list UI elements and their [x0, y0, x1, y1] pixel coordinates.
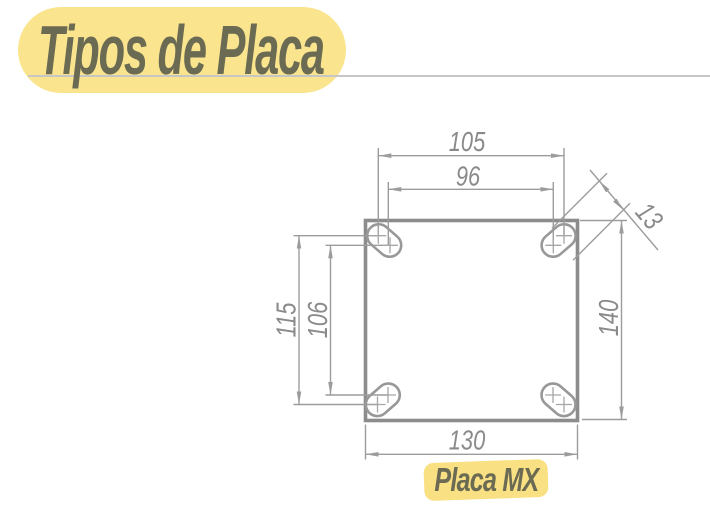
dim-label-130: 130	[449, 425, 485, 456]
dimension-130: 130	[366, 425, 578, 460]
dim-label-106: 106	[302, 302, 333, 338]
dim-label-115: 115	[271, 302, 302, 338]
dim-label-13: 13	[629, 197, 669, 236]
dimension-140: 140	[580, 221, 627, 420]
caption-placa-mx: Placa MX	[424, 459, 548, 501]
dim-label-105: 105	[449, 126, 486, 157]
dim-label-140: 140	[593, 300, 624, 336]
plate-drawing: 105 96 115 106 140 130	[0, 0, 710, 510]
caption-text: Placa MX	[434, 461, 538, 499]
dim-label-96: 96	[456, 161, 480, 192]
